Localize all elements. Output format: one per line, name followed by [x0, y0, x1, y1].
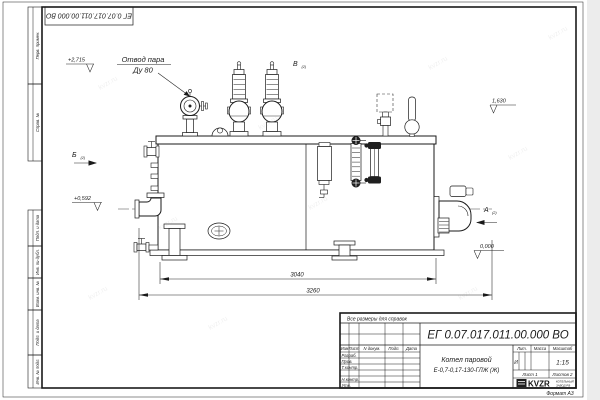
nozzle-stub-1 — [151, 163, 158, 168]
lit-value: И — [514, 360, 518, 366]
col-izm: Изм — [341, 346, 349, 351]
top-doc-stamp-text: ЕГ 0.07.017.011.00.000 ВО — [45, 12, 132, 19]
product-name-2: Е-0,7-0,17-130-ГЛЖ (Ж) — [434, 368, 500, 374]
dim-overall-text: 3260 — [306, 289, 320, 295]
row-utv: Утв. — [342, 383, 352, 388]
brand-line2: ЗАВОД РФ — [556, 384, 571, 388]
col-podp: Подп. — [388, 346, 399, 351]
view-v-letter: В — [293, 61, 298, 68]
format-label: Формат А3 — [546, 391, 574, 397]
view-a-ref: (2) — [492, 211, 497, 215]
margin-label: Взам. инв. № — [35, 281, 40, 307]
view-b-letter: Б — [72, 152, 77, 159]
reference-note: Все размеры для справок — [347, 317, 408, 323]
col-data: Дата — [405, 346, 418, 351]
margin-label: Подп. и дата — [35, 214, 40, 241]
dim-inner-text: 3040 — [290, 273, 304, 279]
logo-text: KVZR — [528, 380, 550, 389]
view-b-ref: (2) — [81, 156, 86, 160]
manhole — [208, 223, 230, 239]
burner-motor — [450, 186, 466, 197]
margin-label: Инв. № дубл. — [35, 249, 40, 275]
elevation-zero-text: 0,000 — [480, 244, 495, 250]
view-v-ref: (2) — [302, 65, 307, 69]
row-razrab: Разраб. — [342, 353, 357, 358]
elevation-right-text: 1,630 — [492, 99, 507, 105]
boiler-shell — [150, 136, 444, 256]
row-nkontr: Н.контр. — [342, 377, 360, 382]
elevation-top-text: +2,715 — [68, 58, 86, 64]
margin-label: Справ. № — [35, 113, 40, 132]
lit-header: Лит. — [516, 346, 527, 351]
sheet-number: Лист 1 — [521, 372, 538, 377]
col-list: Лист — [348, 346, 360, 351]
drawing-sheet: Перв. примен. Справ. № Подп. и дата Инв.… — [0, 0, 600, 400]
nozzle-stub-3 — [151, 186, 158, 191]
product-name-1: Котел паровой — [441, 356, 491, 364]
margin-label: Перв. примен. — [35, 32, 40, 60]
boiler-drawing-svg: Перв. примен. Справ. № Подп. и дата Инв.… — [0, 0, 600, 400]
sheets-total: Листов 2 — [551, 372, 573, 377]
logo-icon — [517, 380, 526, 387]
margin-label: Подп. и дата — [35, 319, 40, 346]
elevation-left-text: +0,592 — [74, 196, 91, 202]
row-tkontr: Т.контр. — [342, 365, 359, 370]
doc-number: ЕГ 0.07.017.011.00.000 ВО — [427, 330, 568, 342]
nozzle-stub-2 — [151, 174, 158, 179]
scale-value: 1:15 — [556, 360, 569, 367]
mass-header: Масса — [534, 346, 547, 351]
col-doc: N докум. — [364, 346, 381, 351]
scale-header: Масштаб — [553, 346, 573, 351]
row-prov: Пров. — [342, 359, 353, 364]
callout-line2: Ду 80 — [132, 66, 153, 75]
view-a-letter: А — [483, 207, 489, 214]
margin-label: Инв. № подл. — [35, 359, 40, 385]
callout-line1: Отвод пара — [122, 55, 165, 64]
